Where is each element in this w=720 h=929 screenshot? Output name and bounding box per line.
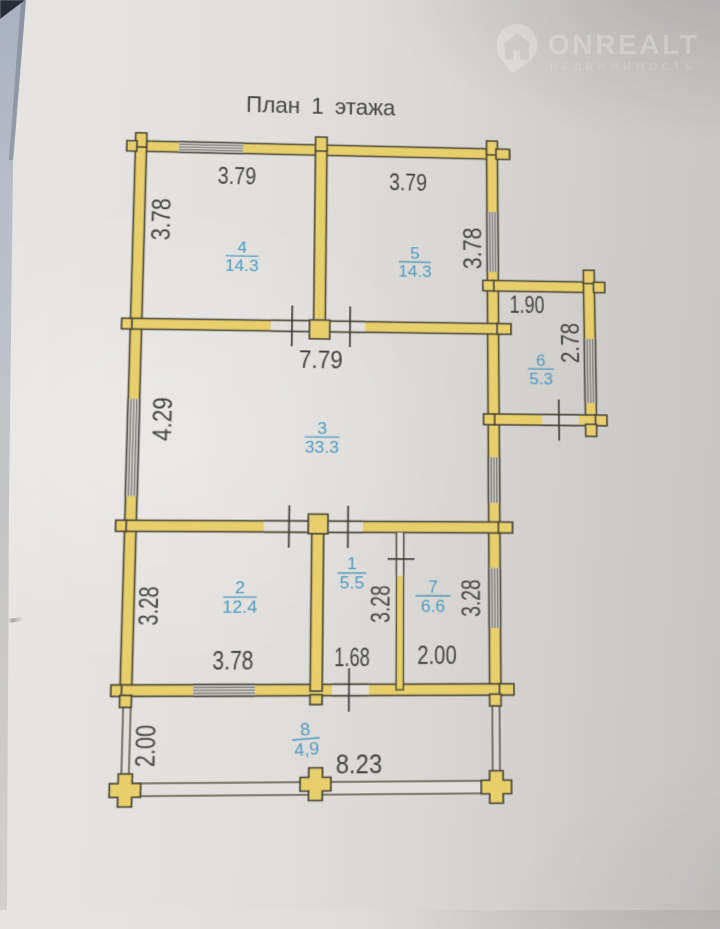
- svg-text:План 1 этажа: План 1 этажа: [246, 93, 396, 121]
- svg-text:4,9: 4,9: [293, 738, 320, 761]
- svg-text:3.28: 3.28: [366, 585, 396, 623]
- svg-text:6: 6: [536, 351, 546, 370]
- svg-text:1.68: 1.68: [334, 643, 370, 673]
- svg-text:7: 7: [428, 577, 438, 597]
- svg-text:12.4: 12.4: [222, 597, 257, 617]
- svg-text:3.78: 3.78: [146, 198, 177, 241]
- svg-text:14.3: 14.3: [398, 262, 431, 281]
- svg-text:33.3: 33.3: [305, 437, 339, 457]
- svg-text:5: 5: [410, 244, 419, 263]
- svg-text:3.78: 3.78: [459, 227, 488, 269]
- svg-text:3: 3: [317, 418, 327, 437]
- svg-text:3.28: 3.28: [457, 579, 487, 616]
- svg-text:1.90: 1.90: [509, 291, 544, 319]
- svg-text:2.78: 2.78: [556, 323, 585, 364]
- svg-text:3.78: 3.78: [212, 646, 254, 676]
- svg-text:8.23: 8.23: [336, 749, 383, 780]
- svg-text:4: 4: [237, 238, 247, 257]
- svg-text:5.5: 5.5: [340, 573, 365, 593]
- svg-text:2.00: 2.00: [417, 641, 456, 671]
- svg-text:1: 1: [347, 554, 357, 574]
- svg-text:6.6: 6.6: [421, 596, 445, 616]
- svg-text:4.29: 4.29: [147, 397, 178, 441]
- svg-text:3.79: 3.79: [217, 162, 256, 190]
- svg-text:2: 2: [235, 578, 245, 598]
- svg-text:8: 8: [299, 719, 311, 740]
- svg-text:2.00: 2.00: [130, 725, 162, 767]
- svg-text:3.28: 3.28: [133, 586, 165, 625]
- svg-text:5.3: 5.3: [529, 369, 553, 388]
- svg-text:7.79: 7.79: [299, 346, 343, 375]
- svg-text:3.79: 3.79: [389, 169, 427, 197]
- svg-text:14.3: 14.3: [225, 256, 259, 275]
